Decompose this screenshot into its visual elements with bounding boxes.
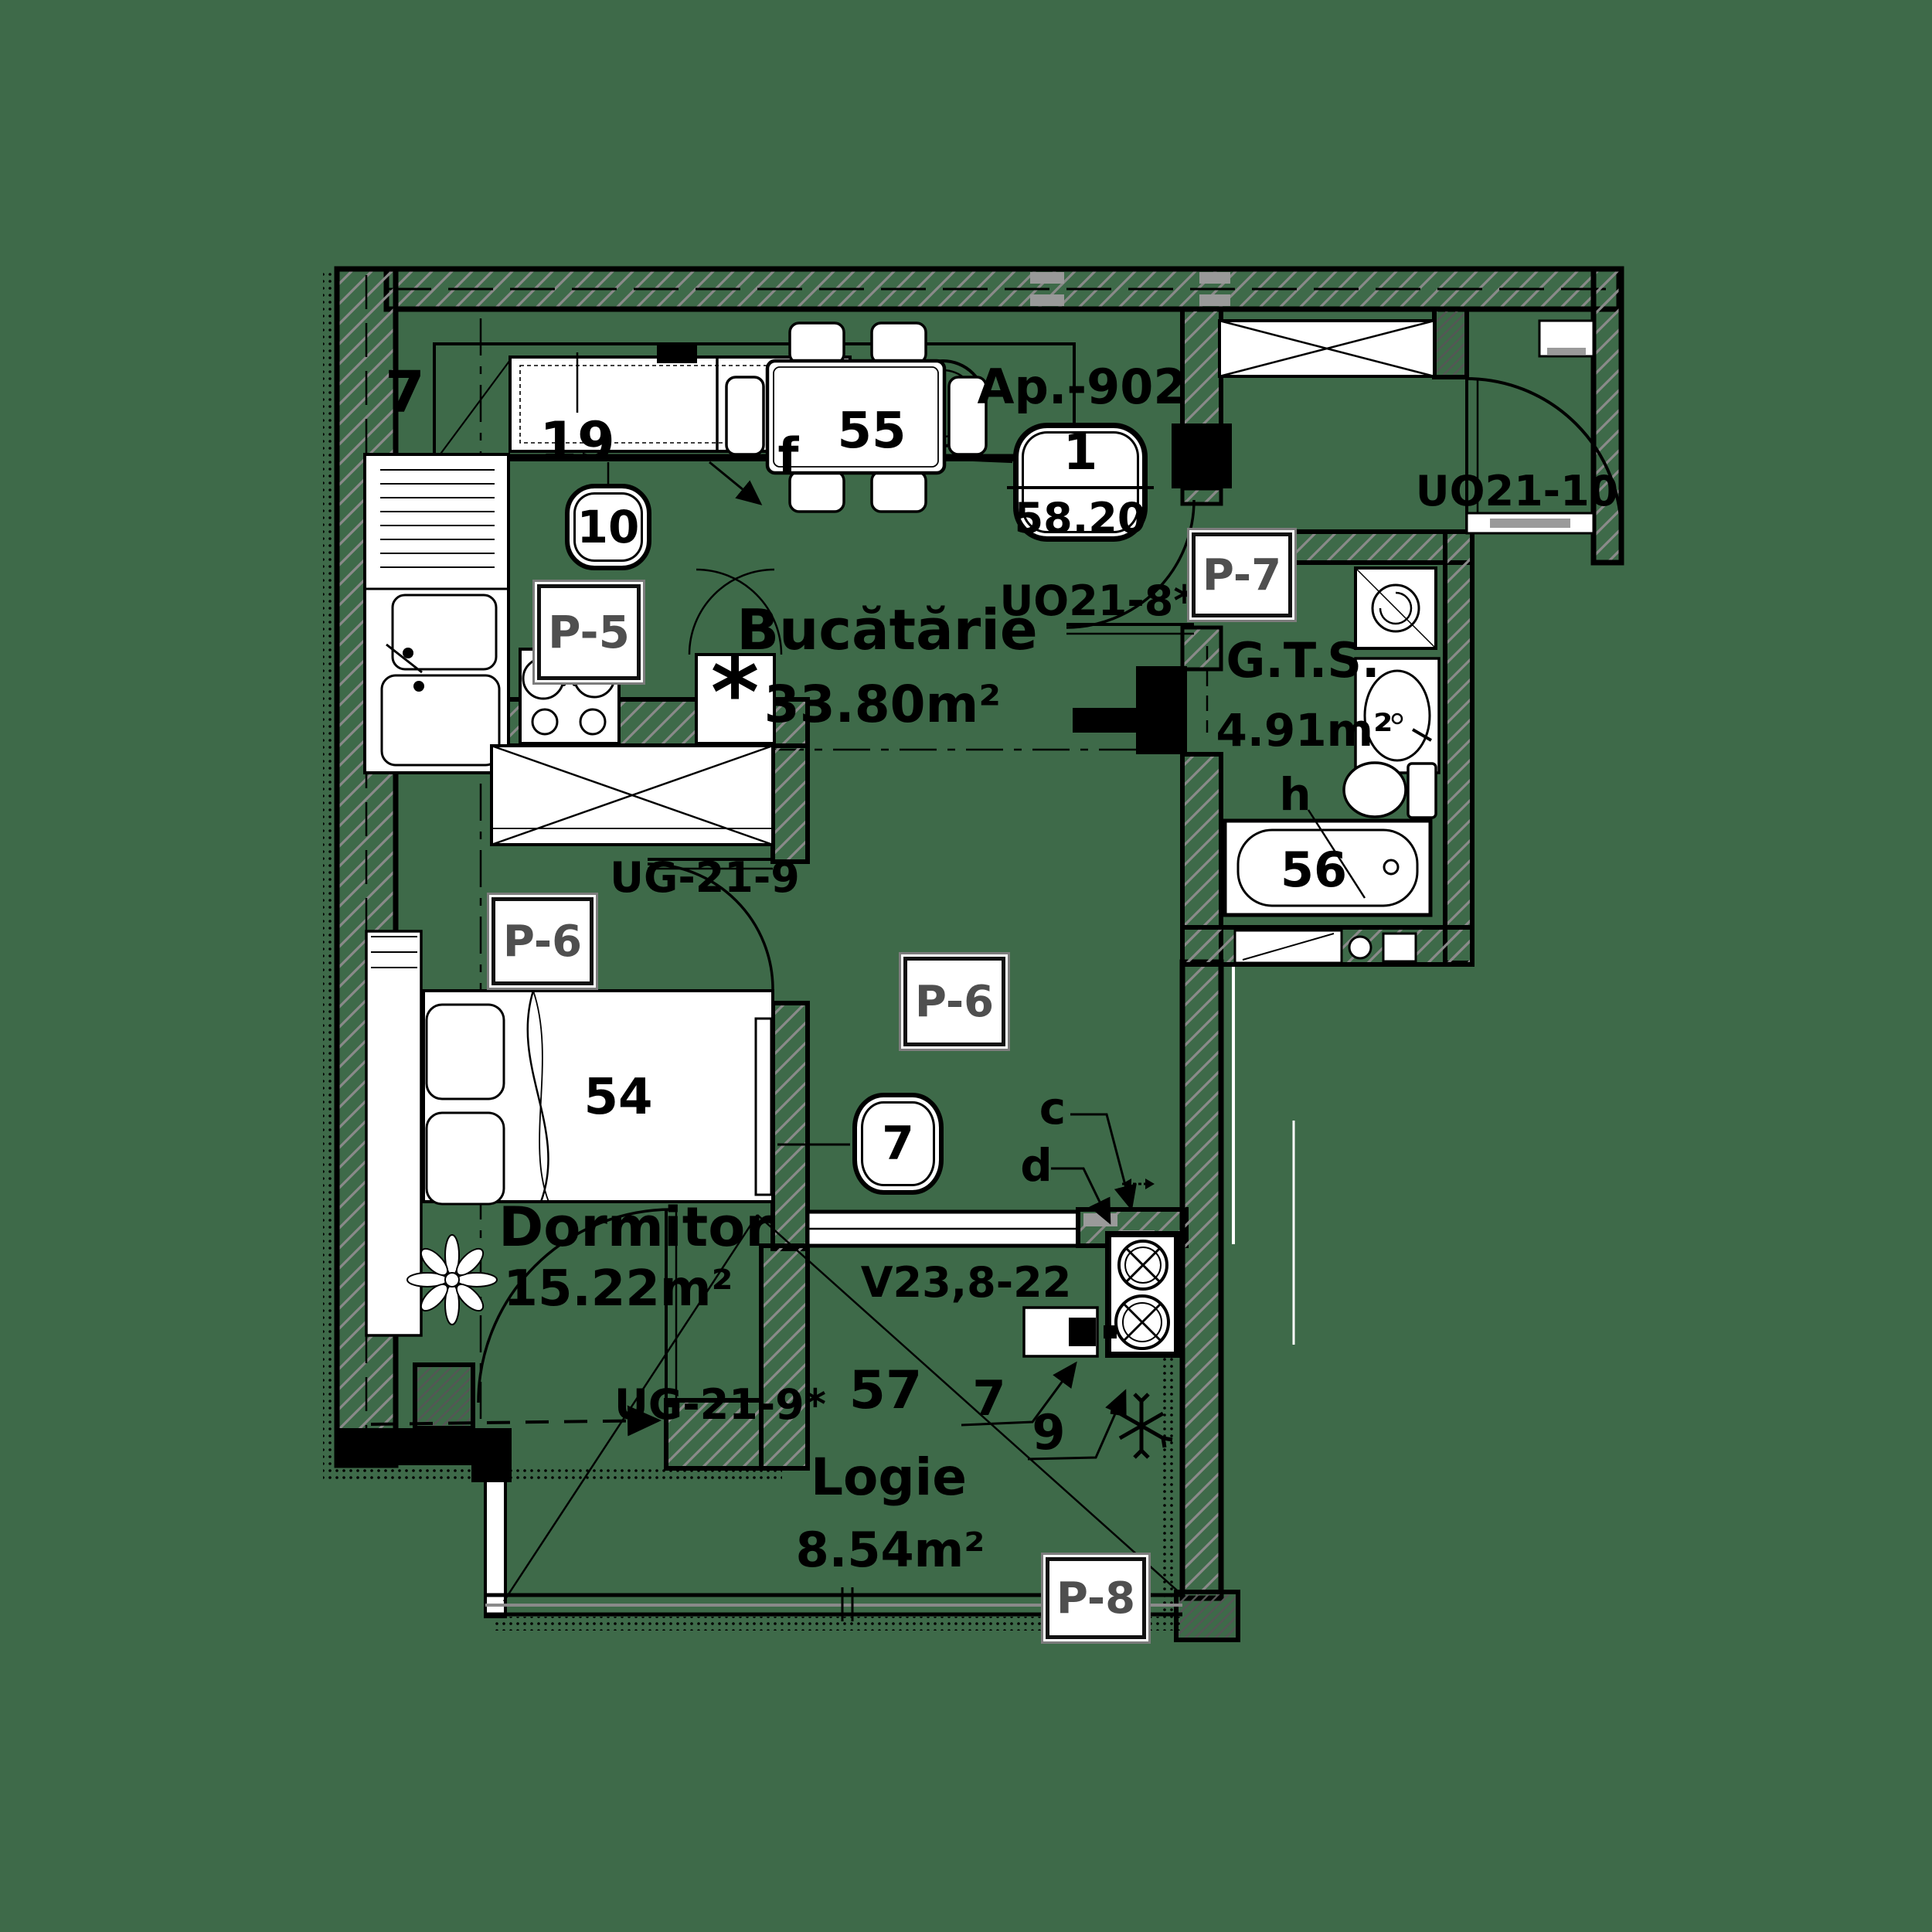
kitchen-sink-unit	[365, 454, 509, 773]
apartment-badge-rooms: 1	[1063, 423, 1098, 486]
apartment-badge: 1 58.20	[1013, 423, 1148, 542]
axis-label-7: 7	[385, 364, 425, 421]
hall-loggia-window	[808, 1212, 1078, 1246]
finish-p6-bedroom-text: P-6	[503, 917, 582, 967]
vent-damper	[1024, 1308, 1117, 1356]
table-leader-arrow	[709, 462, 760, 504]
callout-badge-7: 7	[852, 1093, 944, 1195]
loggia-tag-9: 9	[1032, 1409, 1065, 1457]
apartment-label: Ap.-902	[977, 363, 1186, 411]
door-label-entry: UO21-10	[1416, 471, 1618, 512]
chair	[872, 471, 926, 512]
room-name-loggia: Logie	[811, 1452, 967, 1503]
bedroom	[366, 746, 773, 1424]
closet-x	[492, 746, 773, 845]
callout-57: 57	[849, 1365, 923, 1417]
callout-badge-10-text: 10	[577, 501, 640, 553]
finish-box-p6-hall: P-6	[903, 957, 1005, 1046]
door-label-loggia: UG-21-9*	[614, 1384, 826, 1426]
room-name-kitchen: Bucătărie	[736, 602, 1037, 658]
wall-stub	[1073, 708, 1136, 733]
table-tag-f: f	[778, 432, 799, 480]
finish-box-p6-bedroom: P-6	[492, 897, 594, 985]
floorplan-canvas: * 7 19 10 P-5 f 55 Ap.-902 1 58.20 Bucăt…	[0, 0, 1932, 1932]
finish-p7-text: P-7	[1202, 550, 1281, 600]
room-name-bedroom: Dormitor	[498, 1200, 772, 1254]
callout-19: 19	[539, 415, 614, 469]
tv	[756, 1019, 771, 1195]
room-area-bedroom: 15.22m²	[503, 1264, 733, 1314]
callout-56: 56	[1281, 846, 1347, 894]
door-label-bedroom: UG-21-9	[610, 857, 800, 899]
entry-right-wall	[1594, 269, 1621, 563]
room-name-bathroom: G.T.S.	[1226, 637, 1379, 685]
room-area-kitchen: 33.80m²	[764, 679, 1001, 730]
apartment-badge-area: 58.20	[1007, 486, 1155, 543]
towel-unit	[1235, 930, 1416, 963]
bathroom-left-wall-a	[1182, 309, 1221, 427]
finish-p8-text: P-8	[1056, 1573, 1135, 1624]
door-label-bathroom: UO21-8*	[999, 580, 1195, 622]
bedroom-right-wall-top	[773, 746, 808, 862]
chair	[872, 323, 926, 363]
entry-wardrobe	[1219, 321, 1434, 376]
bedroom-right-wall	[773, 1003, 808, 1249]
right-wall	[1182, 962, 1221, 1598]
bathroom-right-wall	[1445, 532, 1472, 963]
room-area-bathroom: 4.91m²	[1216, 708, 1393, 753]
column-2	[1136, 666, 1187, 754]
finish-box-p8: P-8	[1046, 1557, 1146, 1639]
callout-badge-7-text: 7	[882, 1117, 914, 1171]
bedroom-bottom-wall	[337, 1428, 512, 1465]
toilet	[1344, 763, 1436, 818]
entry-jamb	[1434, 309, 1467, 377]
vent-fans	[1108, 1234, 1177, 1355]
loggia-step-wall	[761, 1246, 808, 1468]
window-label-loggia: V23,8-22	[861, 1262, 1072, 1304]
top-wall	[386, 269, 1619, 309]
callout-54: 54	[583, 1073, 652, 1122]
corner-column	[415, 1365, 473, 1428]
finish-box-p5: P-5	[537, 584, 641, 680]
vent-tag-c: c	[1039, 1086, 1066, 1131]
finish-box-p7: P-7	[1192, 532, 1292, 617]
callout-badge-10: 10	[565, 484, 651, 570]
callout-55: 55	[837, 406, 906, 456]
finish-p6-hall-text: P-6	[915, 977, 994, 1027]
chair	[726, 377, 764, 454]
loggia-tag-7: 7	[972, 1375, 1005, 1423]
vent-tag-d: d	[1020, 1143, 1053, 1188]
bathtub-tag-h: h	[1279, 772, 1311, 817]
room-area-loggia: 8.54m²	[796, 1526, 985, 1574]
column-1	[1172, 423, 1232, 488]
chair	[790, 323, 844, 363]
finish-p5-text: P-5	[548, 606, 630, 658]
